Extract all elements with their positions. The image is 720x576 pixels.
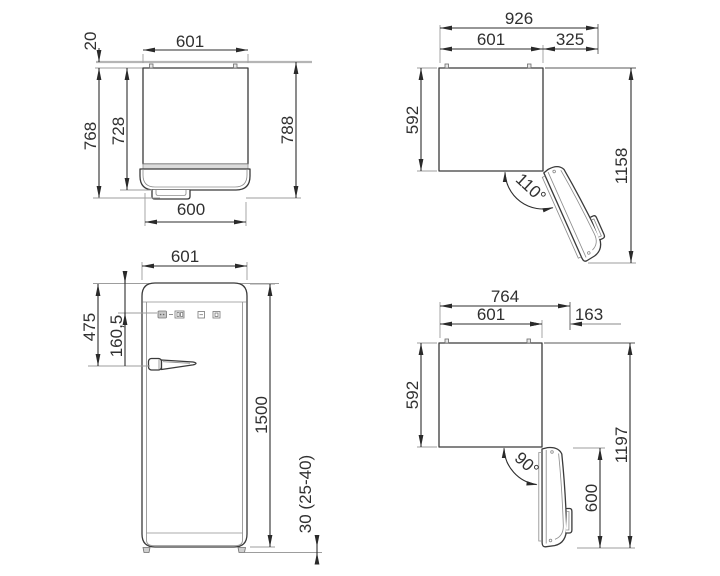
panel-icon-dot [163,314,165,316]
dim-label-overall-width: 764 [491,287,519,306]
dim-label-width: 601 [171,247,199,266]
dim-feet-height: 30 (25-40) [245,455,322,564]
open-door-110 [540,159,611,263]
dim-label-door-clearance: 163 [575,305,603,324]
handle-mount [149,359,162,371]
open-door-90 [539,447,572,546]
view-top-closed: 601 20 768 728 788 600 [81,32,312,226]
dim-label-depth-with-clearance: 788 [278,116,297,144]
dim-label-overall-depth: 1197 [612,427,631,464]
dim-total-height: 1500 [250,284,275,547]
dim-width: 601 [142,247,247,280]
dim-body-width: 601 [440,30,543,63]
dim-label-handle-from-top: 475 [80,313,99,341]
arc-arrow [542,208,553,213]
foot [143,548,150,553]
dim-label-total-height: 1500 [252,396,271,434]
dim-label-door-depth: 600 [582,484,601,512]
hinge-mark [527,339,531,343]
view-front: 601 475 160,5 1500 30 (25-40) [80,247,322,564]
arc-arrow [502,448,506,459]
dim-door-clearance: 325 [543,30,598,49]
dim-body-width: 601 [440,305,542,338]
fridge-outline [142,283,247,547]
dim-door-clearance: 163 [522,305,621,324]
dim-label-width-top: 601 [176,32,204,51]
dim-label-overall-depth: 1158 [612,148,631,185]
view-top-open-90: 90° 764 601 163 592 1197 [403,287,635,548]
panel-icon-1 [158,311,167,318]
dim-door-depth: 600 [573,448,605,548]
arc-arrow [503,172,507,183]
foot [238,548,246,553]
dim-label-feet-height: 30 (25-40) [296,455,315,533]
drawing-canvas: 601 20 768 728 788 600 [0,0,720,576]
dim-label-body-width: 601 [477,30,505,49]
dim-label-body-width: 601 [477,305,505,324]
dim-body-depth: 592 [403,68,437,171]
panel-icon-dot [160,314,162,316]
cabinet-body [143,68,248,164]
hinge-mark [528,64,532,68]
dim-label-depth-overall: 768 [81,122,100,150]
technical-drawing: 601 20 768 728 788 600 [0,0,720,576]
hinge-mark [150,64,154,68]
dim-label-width-bottom: 600 [177,200,205,219]
door-band [143,164,248,169]
dim-depth-overall: 768 [81,68,100,198]
dim-label-body-depth: 592 [403,106,422,134]
arc-arrow [526,481,537,485]
cabinet-body [439,68,543,171]
hinge-mark [445,64,449,68]
dim-label-door-angle: 110° [512,169,550,206]
dim-label-panel-from-top: 160,5 [107,315,126,358]
dim-body-depth: 592 [403,343,437,447]
hinge-mark [445,339,449,343]
dim-label-depth-body: 728 [109,117,128,145]
dim-label-wall-gap: 20 [81,32,100,51]
dim-label-door-clearance: 325 [556,30,584,49]
dim-label-body-depth: 592 [403,381,422,409]
view-top-open-110: 110° 926 601 325 592 1158 [403,9,636,263]
dim-width-top: 601 [143,32,248,63]
dim-label-overall-width: 926 [505,9,533,28]
hinge-mark [234,64,238,68]
dim-wall-gap: 20 [81,32,100,62]
cabinet-body [439,343,542,447]
